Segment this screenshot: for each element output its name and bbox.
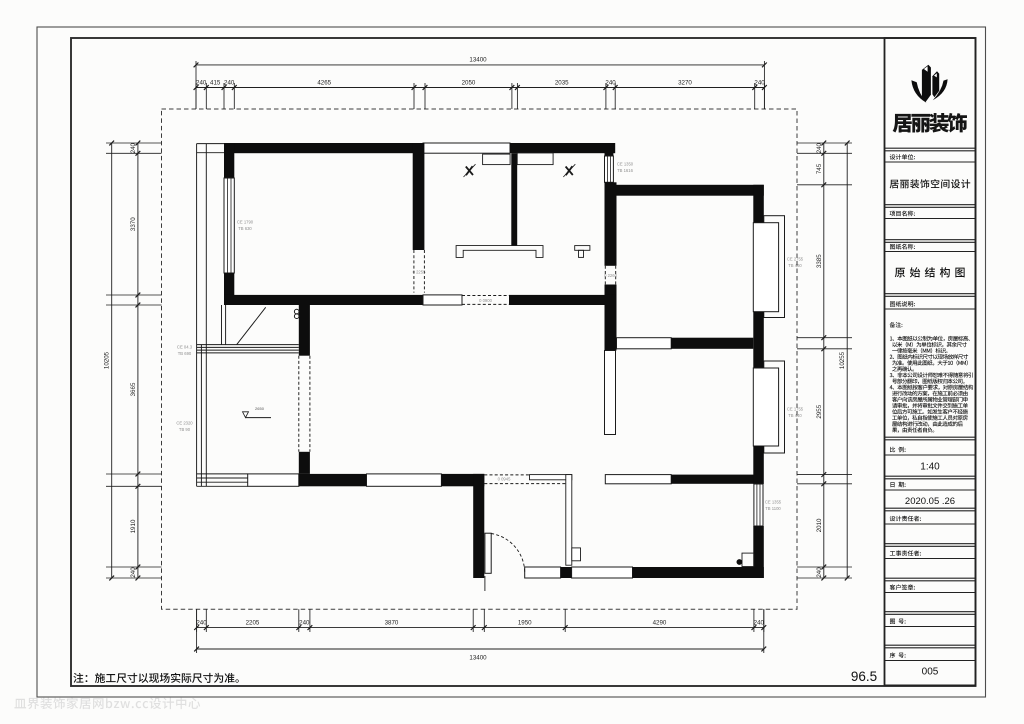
svg-text:240: 240	[816, 567, 823, 578]
svg-text:2010: 2010	[816, 518, 823, 532]
svg-text:4290: 4290	[653, 620, 667, 627]
svg-text:2955: 2955	[816, 404, 823, 418]
svg-text:TB 90: TB 90	[179, 427, 191, 432]
svg-text:1910: 1910	[130, 519, 137, 533]
svg-text:240: 240	[196, 620, 207, 627]
svg-text:2020.05 .26: 2020.05 .26	[905, 496, 955, 507]
svg-text:240: 240	[196, 80, 207, 87]
svg-text:240: 240	[605, 80, 616, 87]
svg-text:3370: 3370	[130, 217, 137, 231]
svg-text:1950: 1950	[518, 620, 532, 627]
svg-text:TB 460: TB 460	[788, 263, 802, 268]
svg-text:240: 240	[130, 142, 137, 153]
svg-text:13400: 13400	[469, 655, 487, 662]
svg-text:0 0900: 0 0900	[479, 298, 492, 303]
svg-text:240: 240	[299, 620, 310, 627]
svg-text:3870: 3870	[385, 620, 399, 627]
svg-text:3270: 3270	[678, 80, 692, 87]
svg-text:240: 240	[816, 142, 823, 153]
svg-text:3665: 3665	[130, 382, 137, 396]
svg-text:240: 240	[130, 567, 137, 578]
svg-text:CE 1755: CE 1755	[787, 407, 804, 412]
svg-text:240: 240	[224, 80, 235, 87]
svg-text:415: 415	[210, 80, 221, 87]
svg-text:96.5: 96.5	[851, 669, 877, 684]
svg-text:TB 1616: TB 1616	[617, 168, 634, 173]
svg-text:1:40: 1:40	[920, 462, 940, 473]
svg-text:TB 440: TB 440	[788, 413, 802, 418]
svg-text:3385: 3385	[816, 254, 823, 268]
svg-text:2050: 2050	[462, 80, 476, 87]
svg-text:240: 240	[754, 80, 765, 87]
svg-text:CE 1355: CE 1355	[765, 500, 782, 505]
svg-text:10255: 10255	[839, 351, 846, 369]
svg-text:745: 745	[816, 163, 823, 174]
svg-text:4265: 4265	[317, 80, 331, 87]
svg-text:CE 2320: CE 2320	[176, 421, 193, 426]
svg-text:0 0945: 0 0945	[498, 477, 511, 482]
svg-text:005: 005	[922, 667, 939, 678]
svg-text:13400: 13400	[469, 57, 487, 64]
svg-text:TB 1100: TB 1100	[765, 506, 781, 511]
svg-text:240: 240	[754, 620, 765, 627]
svg-text:2205: 2205	[246, 620, 260, 627]
svg-text:10205: 10205	[104, 351, 111, 369]
svg-text:0 2255: 0 2255	[413, 270, 426, 275]
svg-text:CE 04.3: CE 04.3	[177, 345, 193, 350]
svg-text:CE 1790: CE 1790	[237, 220, 254, 225]
svg-text:2035: 2035	[555, 80, 569, 87]
svg-text:2650: 2650	[255, 406, 265, 411]
svg-text:TB 630: TB 630	[238, 226, 252, 231]
svg-text:0 2260: 0 2260	[604, 273, 617, 278]
svg-text:TB 690: TB 690	[178, 351, 192, 356]
svg-text:CE 1350: CE 1350	[617, 162, 634, 167]
svg-text:CE 2755: CE 2755	[787, 257, 804, 262]
